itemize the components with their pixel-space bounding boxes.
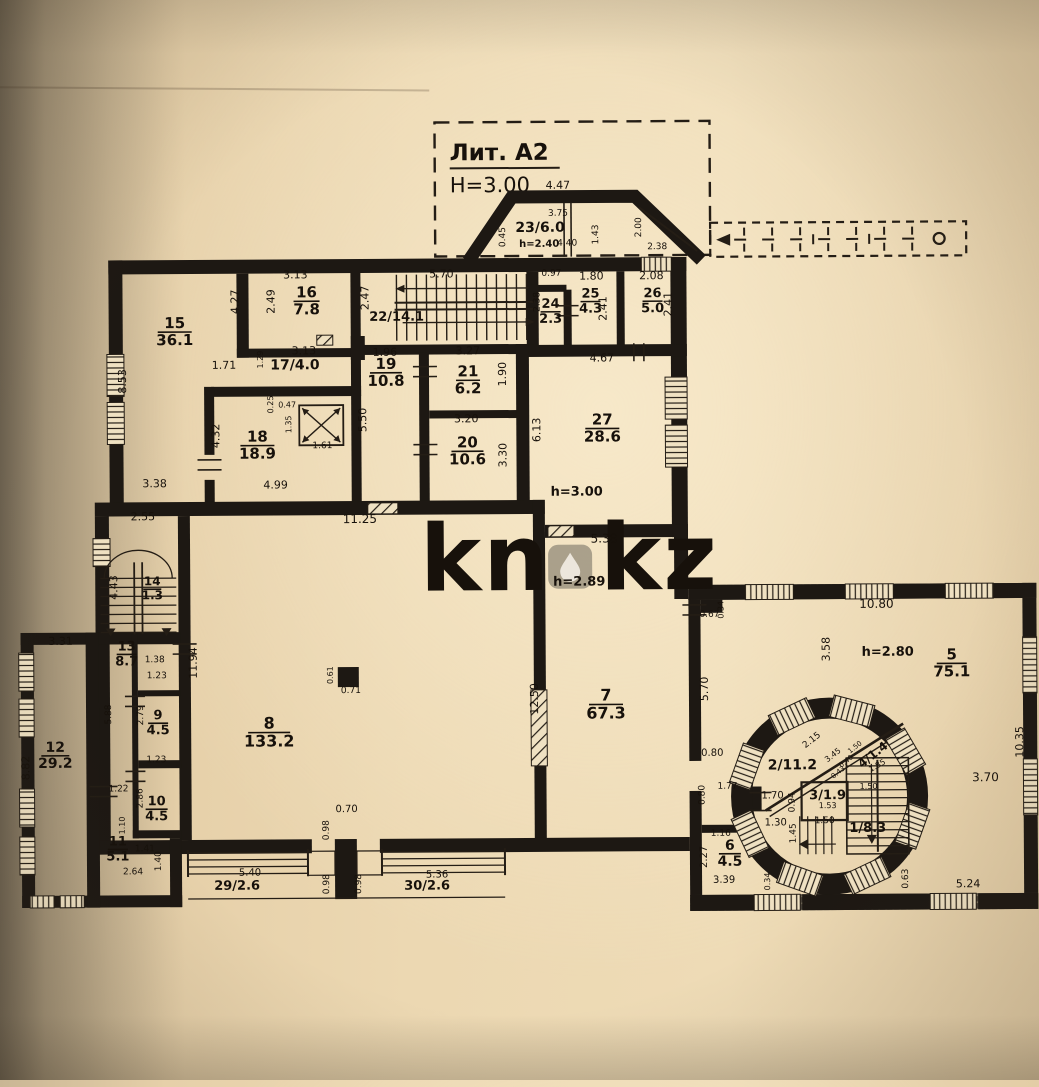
- room-number-label: 5: [946, 645, 957, 663]
- shaft-symbol: [299, 405, 343, 445]
- dimension-label: 3.27: [456, 344, 481, 357]
- dimension-label: 0.94: [788, 792, 798, 812]
- room-label: 3/1.9: [809, 788, 846, 803]
- dimension-label: 1.43: [591, 224, 601, 244]
- dimension-label: 2.27: [699, 846, 710, 868]
- dimension-label: 3.70: [972, 770, 999, 784]
- room-area-label: 7.8: [293, 300, 320, 318]
- dimension-label: 1.70: [761, 790, 783, 801]
- dimension-label: 4.27: [228, 289, 241, 314]
- room-number-label: 27: [592, 410, 613, 428]
- dimension-label: 2.55: [131, 510, 156, 523]
- dimension-label: 1.23: [146, 755, 166, 765]
- dimension-label: 8.53: [116, 369, 129, 394]
- dimension-label: 1.29: [256, 351, 265, 369]
- ceiling-height-label: h=2.40: [519, 239, 559, 250]
- dimension-label: 2.64: [123, 867, 143, 877]
- room-number-label: 6: [725, 838, 735, 854]
- floor-plan-sheet: Лит. А2 H=3.00: [0, 0, 1039, 1083]
- room-label: 22/14.1: [369, 310, 424, 325]
- dimension-label: 11.94: [187, 647, 200, 679]
- room-area-label: 75.1: [933, 662, 970, 680]
- room-label: 23/6.0: [515, 220, 565, 236]
- ceiling-height-label: h=3.00: [551, 484, 603, 499]
- dimension-label: 5.88: [104, 704, 114, 724]
- dimension-label: 3.39: [713, 875, 735, 886]
- strip-end-icon: [934, 233, 945, 244]
- dimension-label: 1.22: [108, 784, 128, 794]
- dimension-label: 1.10: [118, 816, 127, 834]
- dimension-label: 3.20: [454, 412, 479, 425]
- room-label: 30/2.6: [404, 878, 450, 893]
- room-area-label: 133.2: [244, 731, 295, 750]
- dimension-label: 3.58: [820, 637, 833, 662]
- dimension-label: 1.45: [789, 823, 799, 843]
- room-area-label: 4.5: [145, 809, 168, 824]
- dimension-label: 5.70: [429, 267, 454, 280]
- dimension-label: 4.32: [209, 424, 222, 449]
- dimension-label: 0.98: [354, 874, 364, 894]
- room-number-label: 24: [541, 297, 559, 312]
- dimension-label: 0.97: [541, 269, 561, 279]
- dimension-label: 4.99: [263, 478, 288, 491]
- dimension-label: 2.08: [639, 269, 664, 282]
- dimension-label: 0.25: [266, 396, 275, 414]
- watermark-right: kz: [600, 504, 719, 612]
- dimension-label: 1.61: [312, 441, 332, 451]
- dimension-label: 2.47: [358, 286, 371, 311]
- dimension-label: 1.40: [154, 851, 164, 871]
- ceiling-height-label: h=2.80: [862, 645, 914, 660]
- dimension-label: 3.31: [48, 635, 73, 648]
- dimension-label: 12.50: [528, 683, 541, 715]
- dimension-label: 4.67: [590, 351, 615, 364]
- dimension-label: 0.47: [278, 400, 296, 409]
- room-area-label: 67.3: [586, 703, 626, 722]
- dimension-label: 0.80: [701, 748, 723, 759]
- dimension-label: 0.34: [763, 873, 772, 891]
- dimension-label: 3.13: [292, 344, 317, 357]
- dimension-label: 4.47: [546, 179, 571, 192]
- room-area-label: 36.1: [156, 331, 193, 349]
- room-number-label: 26: [643, 286, 661, 301]
- paper-crease: [0, 85, 429, 94]
- room-label: 29/2.6: [214, 879, 260, 894]
- room-number-label: 10: [147, 794, 165, 809]
- room-number-label: 19: [375, 355, 396, 373]
- room-number-label: 7: [600, 685, 611, 704]
- dimension-label: 1.23: [147, 671, 167, 681]
- dimension-label: 0.71: [341, 686, 361, 696]
- dimension-label: 5.70: [698, 677, 711, 702]
- watermark: kn kz: [420, 504, 719, 613]
- room-area-label: 5.1: [106, 849, 129, 864]
- dimension-label: 1.30: [765, 817, 787, 828]
- dimension-label: 1.35: [284, 415, 293, 433]
- room-number-label: 15: [164, 314, 185, 332]
- dimension-label: 1.50: [815, 816, 835, 826]
- dimension-label: 10.35: [1013, 726, 1026, 758]
- utility-strip: [710, 221, 966, 257]
- room-number-label: 25: [581, 287, 599, 302]
- dimension-label: 0.98: [322, 820, 332, 840]
- dimension-label: 4.40: [557, 239, 577, 249]
- room-number-label: 16: [296, 283, 317, 301]
- room-area-label: 10.8: [367, 372, 404, 390]
- tower-stairs: [798, 760, 909, 855]
- room-area-label: 2.3: [539, 312, 562, 327]
- dimension-label: 2.86: [136, 788, 146, 808]
- dimension-label: 5.40: [239, 868, 261, 879]
- room-area-label: 8.7: [115, 654, 138, 669]
- room-area-label: 4.3: [579, 301, 602, 316]
- dimension-label: 0.98: [322, 874, 332, 894]
- dimension-label: 0.61: [326, 666, 335, 684]
- dimension-label: 10.80: [859, 597, 893, 611]
- dimension-label: 2.38: [647, 242, 667, 252]
- strip-arrow-icon: [716, 234, 730, 246]
- room-number-label: 8: [263, 713, 274, 732]
- room-number-label: 11: [109, 834, 127, 849]
- dimension-label: 3.13: [283, 268, 308, 281]
- dimension-label: 5.50: [356, 408, 369, 433]
- dimension-label: 4.43: [107, 575, 120, 600]
- dimension-label: 2.00: [634, 217, 644, 237]
- dimension-label: 1.41: [135, 844, 155, 854]
- room-number-label: 13: [118, 639, 136, 654]
- dimension-label: 2.15: [801, 731, 823, 751]
- dimension-label: 1.50: [860, 782, 878, 791]
- stairs-main: [394, 274, 534, 341]
- room-area-label: 4.5: [718, 854, 743, 870]
- dimension-label: 1.71: [212, 359, 237, 372]
- ceiling-height-label: h=2.89: [553, 574, 605, 589]
- room-number-label: 14: [144, 574, 161, 588]
- room-area-label: 29.2: [38, 756, 73, 772]
- room-area-label: 4.5: [147, 723, 170, 738]
- dimension-label: 11.25: [343, 512, 377, 526]
- room-area-label: 5.0: [641, 301, 664, 316]
- dimension-label: 1.77: [717, 782, 737, 792]
- room-number-label: 21: [457, 362, 478, 380]
- dimension-label: 0.34: [716, 601, 725, 619]
- liter-label: Лит. А2: [450, 140, 549, 167]
- dimension-label: 0.80: [697, 785, 707, 805]
- dimension-label: 1.38: [145, 655, 165, 665]
- room-area-label: 18.9: [239, 444, 276, 462]
- dimension-label: 3.75: [548, 209, 568, 219]
- room-area-label: 10.6: [449, 450, 486, 468]
- dimension-label: 2.49: [264, 289, 277, 314]
- dimension-label: 5.38: [591, 531, 618, 545]
- dimension-label: 5.24: [956, 877, 981, 890]
- dimension-label: 8.82: [19, 756, 32, 781]
- dimension-label: 6.13: [530, 418, 543, 443]
- room-number-label: 18: [247, 428, 268, 446]
- watermark-left: kn: [420, 505, 551, 613]
- dimension-label: 1.90: [496, 362, 509, 387]
- room-number-label: 9: [153, 708, 162, 723]
- room-area-label: 1.3: [142, 588, 163, 602]
- room-number-label: 12: [45, 740, 65, 756]
- room-label: 17/4.0: [270, 357, 320, 373]
- dimension-label: 2.79: [136, 705, 146, 725]
- dimension-label: 0.63: [901, 869, 911, 889]
- room-area-label: 6.2: [455, 379, 482, 397]
- room-number-label: 20: [457, 433, 478, 451]
- floor-plan-svg: Лит. А2 H=3.00: [0, 0, 1039, 1083]
- room-label: 2/11.2: [768, 757, 818, 773]
- dimension-label: 3.30: [496, 443, 509, 468]
- room-area-label: 28.6: [584, 427, 621, 445]
- dimension-label: 3.38: [142, 477, 167, 490]
- room-label: 1/8.3: [849, 821, 886, 836]
- dimension-label: 1.80: [579, 269, 604, 282]
- dimension-label: 0.45: [498, 227, 508, 247]
- dimension-label: 0.70: [335, 804, 357, 815]
